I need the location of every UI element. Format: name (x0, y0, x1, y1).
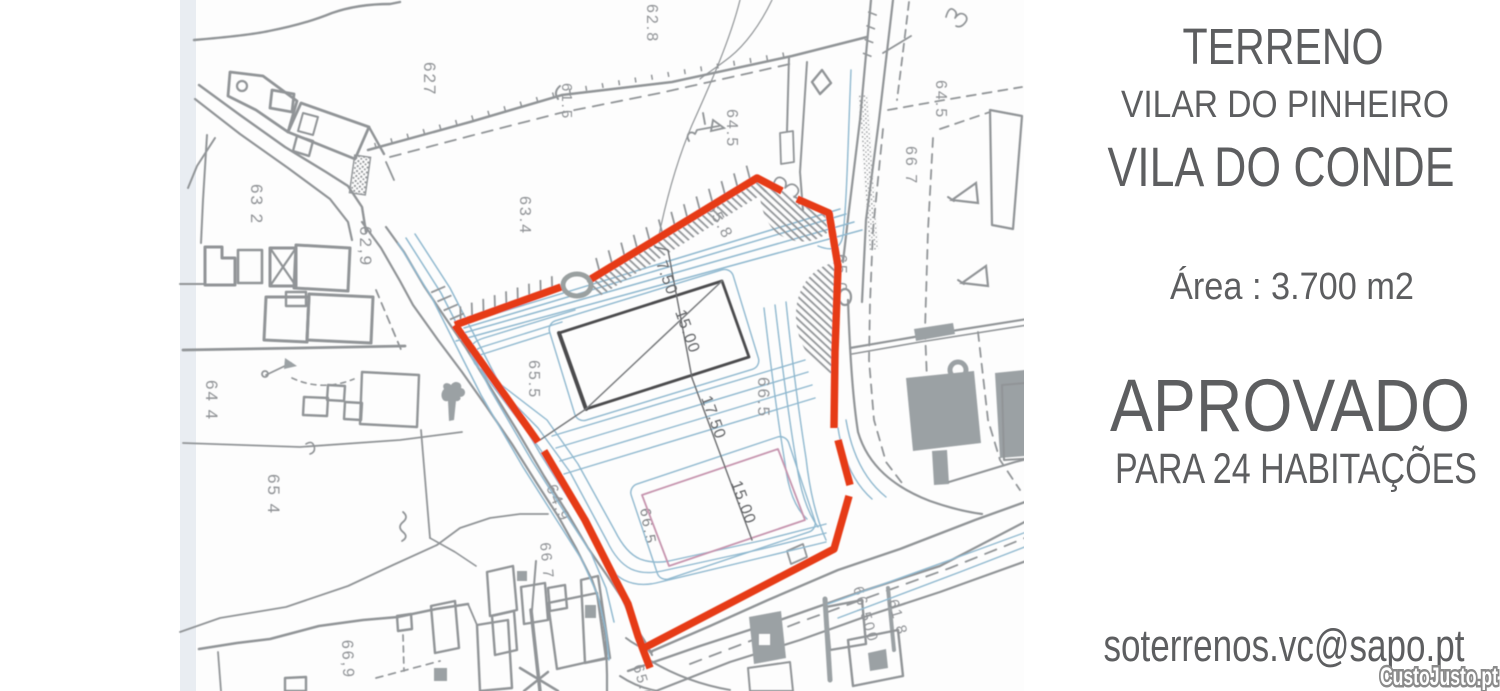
svg-text:62,9: 62,9 (356, 226, 375, 267)
svg-text:PARA 24 HABITAÇÕES: PARA 24 HABITAÇÕES (1115, 445, 1477, 493)
svg-text:VILAR DO PINHEIRO: VILAR DO PINHEIRO (1121, 84, 1449, 126)
svg-text:66 7: 66 7 (902, 146, 919, 185)
svg-text:62.8: 62.8 (643, 4, 660, 43)
svg-text:64 4: 64 4 (202, 380, 221, 421)
svg-text:VILA DO CONDE: VILA DO CONDE (1108, 135, 1455, 198)
svg-text:63.4: 63.4 (516, 196, 533, 235)
svg-text:63 2: 63 2 (247, 184, 266, 225)
svg-text:65.5: 65.5 (525, 360, 542, 399)
svg-text:64.5: 64.5 (723, 109, 740, 148)
svg-text:65 4: 65 4 (264, 474, 283, 515)
svg-text:66,9: 66,9 (338, 640, 356, 680)
svg-text:64.5: 64.5 (932, 80, 949, 119)
svg-text:66.5: 66.5 (754, 377, 773, 418)
svg-text:627: 627 (420, 62, 439, 96)
svg-text:APROVADO: APROVADO (1110, 364, 1470, 447)
svg-text:CustoJusto.pt: CustoJusto.pt (1380, 663, 1498, 691)
svg-text:61.5: 61.5 (558, 83, 575, 120)
svg-text:TERRENO: TERRENO (1183, 18, 1384, 75)
svg-text:Área : 3.700 m2: Área : 3.700 m2 (1170, 265, 1414, 308)
